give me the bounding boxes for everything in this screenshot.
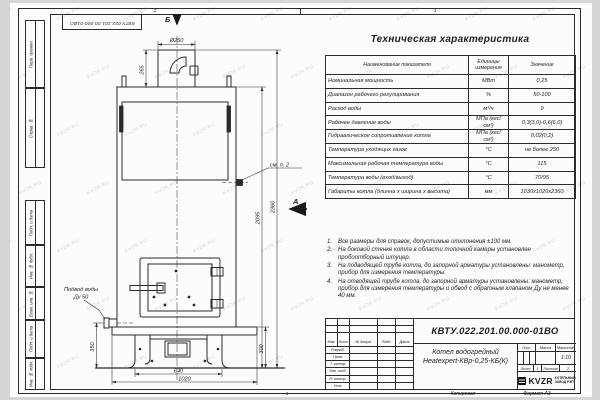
sheet-value: 1 — [534, 365, 542, 371]
spec-row: Максимальная рабочая температура воды°С1… — [326, 157, 576, 171]
inlet-label-line2: Ду 50 — [73, 295, 89, 301]
spec-row: Расход водым³/ч9 — [326, 102, 576, 116]
spec-row: Рабочее давление водыМПа (кгс/см²)0,3(3,… — [326, 116, 576, 130]
spec-row: Габариты котла (длинна х ширина х высота… — [326, 185, 576, 199]
kvzr-logo-text: KVZR — [528, 376, 552, 386]
watermark-text: KVZR.RU — [10, 238, 13, 255]
scale-value: 1:10 — [556, 352, 576, 364]
spec-table: Наименование показателя Единицы измерени… — [325, 55, 576, 199]
view-a-label: А — [292, 197, 298, 206]
spec-units: МВт — [469, 75, 509, 89]
spec-units: °С — [469, 171, 509, 185]
dim-base-height: 300 — [259, 343, 265, 353]
side-box-sprav-no: Справ. № — [25, 88, 45, 168]
dim-total-height: 2360 — [271, 200, 277, 214]
notes-list: 1.Все размеры для справок, допустимые от… — [327, 239, 577, 302]
watermark-text: KVZR.RU — [10, 122, 13, 139]
role-rows: Разраб. Пров. Т. контр. Нач. отд. Н. кон… — [326, 347, 413, 390]
title-block-left: Изм. Лист № докум. Подп. Дата Разраб. Пр… — [326, 319, 414, 389]
dim-chimney-dia: Ø250 — [169, 38, 185, 44]
note-item: 3.На подводящей трубе котла, до запорной… — [327, 263, 577, 278]
spec-value: 50-100 — [509, 88, 576, 102]
spec-value: 0,02(0,2) — [509, 130, 576, 144]
spec-value: 70/95 — [509, 171, 576, 185]
side-box-inv-dubl: Инв. № дубл. — [25, 245, 45, 287]
product-name: Котел водогрейный Heatexpert-КВр-0,25-КБ… — [414, 344, 518, 389]
spec-row: Гидравлическое сопротивление котлаМПа (к… — [326, 130, 576, 144]
spec-header-row: Наименование показателя Единицы измерени… — [326, 56, 576, 75]
scale-label: Масштаб — [556, 344, 576, 351]
spec-name: Максимальная рабочая температура воды — [326, 157, 469, 171]
section-mark-b: Б — [165, 14, 177, 24]
doc-number: КВТУ.022.201.00.000-01ВО — [414, 319, 576, 344]
inlet-label-line1: Подвод воды — [64, 287, 98, 293]
spec-units: МПа (кгс/см²) — [469, 116, 509, 130]
spec-value: 0,3(3,0)-0,6(6,0) — [509, 116, 576, 130]
kvzr-logo-icon — [518, 377, 526, 385]
lit-label: Лит. — [518, 344, 536, 351]
note-item: 1.Все размеры для справок, допустимые от… — [327, 239, 577, 246]
zone-label: 1 — [267, 391, 307, 397]
spec-name: Рабочее давление воды — [326, 116, 469, 130]
role-label: Разраб. — [326, 347, 350, 353]
see-note-label: см. п. 2 — [270, 163, 290, 169]
spec-name: Температура воды (вход/выход) — [326, 171, 469, 185]
spec-units: °С — [469, 157, 509, 171]
watermark-text: KVZR.RU — [10, 354, 13, 371]
note-item: 4.На отводящей трубе котла, до запорной … — [327, 279, 577, 301]
dim-chimney-height: 265 — [140, 64, 146, 75]
spec-name: Гидравлическое сопротивление котла — [326, 130, 469, 144]
format-label: Формат А3 — [502, 391, 572, 397]
dim-inlet-height: 350 — [90, 341, 96, 351]
spec-row: Диапазон рабочего регулирования%50-100 — [326, 88, 576, 102]
dimensions: Ø250 265 2095 2360 350 30 — [90, 38, 281, 385]
view-mark-a: А — [290, 197, 307, 209]
spec-name: Расход воды — [326, 102, 469, 116]
watermark-text: KVZR.RU — [10, 6, 13, 23]
boiler-front-view: Б А Ø250 265 2095 — [50, 14, 320, 390]
dim-support-width: 640 — [174, 369, 184, 375]
sheet-label: Лист — [518, 365, 534, 371]
side-box-vzam-inv: Взам. инв. № — [25, 287, 45, 320]
side-box-podp-data2: Подп. и дата — [25, 320, 45, 358]
spec-name: Габариты котла (длинна х ширина х высота… — [326, 185, 469, 199]
sheets-label: Листов — [542, 365, 560, 371]
note-item: 2.На боковой стенке котла в области топо… — [327, 247, 577, 262]
spec-row: Температура уходящих газов°Сне более 250 — [326, 144, 576, 158]
title-block-right: КВТУ.022.201.00.000-01ВО Котел водогрейн… — [414, 319, 576, 389]
role-label: Нач. отд. — [326, 368, 350, 374]
spec-name: Диапазон рабочего регулирования — [326, 88, 469, 102]
spec-name: Номинальная мощность — [326, 75, 469, 89]
role-label: Пров. — [326, 354, 350, 360]
section-b-label: Б — [165, 15, 171, 24]
spec-row: Температура воды (вход/выход)°С70/95 — [326, 171, 576, 185]
callouts: см. п. 2 Подвод воды Ду 50 — [64, 163, 302, 320]
revision-spare-rows — [326, 319, 413, 339]
role-label: Утв. — [326, 383, 350, 389]
company-name: КОТЕЛЬНЫЙ ЗАВОД РЭП — [555, 377, 576, 385]
spec-value: 115 — [509, 157, 576, 171]
side-box-perv-primen: Перв. примен. — [25, 20, 45, 88]
spec-units: м³/ч — [469, 102, 509, 116]
spec-units: мм — [469, 185, 509, 199]
role-label: Т. контр. — [326, 361, 350, 367]
spec-name: Температура уходящих газов — [326, 144, 469, 158]
role-label: Н. контр. — [326, 376, 350, 382]
revision-header-row: Изм. Лист № докум. Подп. Дата — [326, 339, 413, 347]
spec-table-title: Техническая характеристика — [325, 34, 575, 45]
spec-value: не более 250 — [509, 144, 576, 158]
side-box-inv-podl: Инв. № подл. — [25, 358, 45, 390]
spec-header-units: Единицы измерения — [469, 56, 509, 75]
company-cell: KVZR КОТЕЛЬНЫЙ ЗАВОД РЭП — [518, 372, 576, 389]
spec-header-name: Наименование показателя — [326, 56, 469, 75]
chimney-elbow — [170, 57, 198, 75]
spec-units: % — [469, 88, 509, 102]
mass-label: Масса — [536, 344, 556, 351]
furnace-door — [130, 258, 223, 317]
title-block: Изм. Лист № докум. Подп. Дата Разраб. Пр… — [325, 318, 575, 390]
dim-base-width: 1020 — [178, 377, 191, 383]
spec-value: 9 — [509, 102, 576, 116]
spec-value: 1030х1020х2360 — [509, 185, 576, 199]
spec-row: Номинальная мощностьМВт0,25 — [326, 75, 576, 89]
spec-header-value: Значение — [509, 56, 576, 75]
page-background: KVZR.RUKVZR.RUKVZR.RUKVZR.RUKVZR.RUKVZR.… — [0, 0, 600, 400]
spec-units: МПа (кгс/см²) — [469, 130, 509, 144]
side-box-podp-data: Подп. и дата — [25, 200, 45, 245]
dim-body-height: 2095 — [256, 211, 262, 225]
base-and-support — [95, 327, 285, 368]
sheets-value: 2 — [560, 365, 576, 371]
spec-units: °С — [469, 144, 509, 158]
spec-value: 0,25 — [509, 75, 576, 89]
copy-label: Копировал — [428, 391, 498, 397]
drawing-sheet: KVZR.RUKVZR.RUKVZR.RUKVZR.RUKVZR.RUKVZR.… — [10, 3, 592, 397]
